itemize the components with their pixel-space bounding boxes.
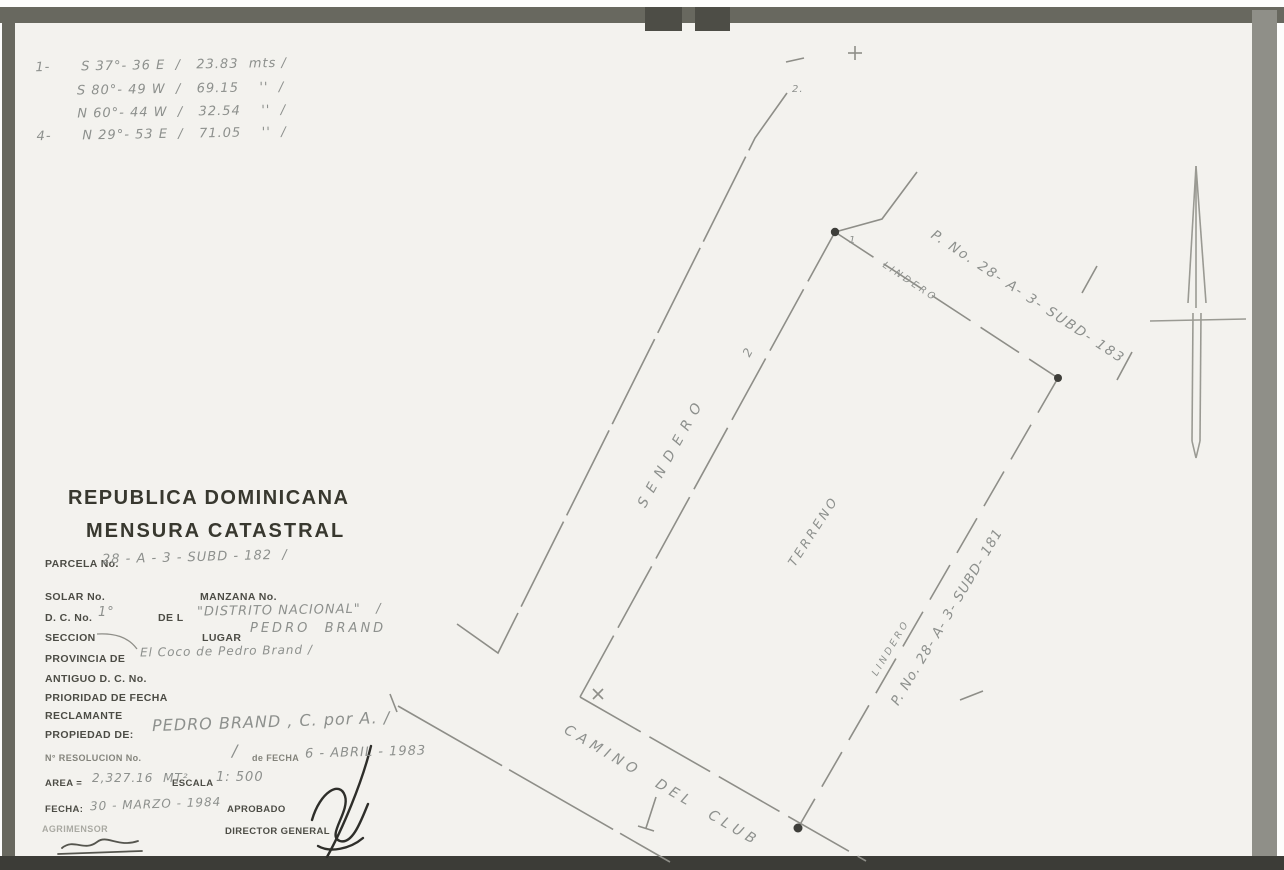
document-title-line1: REPUBLICA DOMINICANA xyxy=(68,487,349,510)
top-extension-mark: 2. xyxy=(792,84,804,95)
antiguo-dc-label: ANTIGUO D. C. No. xyxy=(45,673,147,685)
agrimensor-signature xyxy=(58,839,142,854)
seccion-label: SECCION xyxy=(45,632,96,644)
propiedad-label: PROPIEDAD DE: xyxy=(45,729,134,741)
north-arrow-icon xyxy=(1150,166,1246,458)
corner-dot-east xyxy=(1054,374,1062,382)
resolucion-label: N° RESOLUCION No. xyxy=(45,753,141,763)
document-title-line2: MENSURA CATASTRAL xyxy=(86,520,345,543)
corner-dot-north xyxy=(831,228,839,236)
parcel-edge-southeast xyxy=(798,378,1058,828)
aprobado-label: APROBADO xyxy=(227,804,286,815)
reclamante-label: RECLAMANTE xyxy=(45,710,123,722)
provincia-label: PROVINCIA DE xyxy=(45,653,125,665)
scanned-document: 1- S 37°- 36 E / 23.83 mts / S 80°- 49 W… xyxy=(0,0,1284,870)
agrimensor-label: AGRIMENSOR xyxy=(42,824,108,834)
sendero-west-line xyxy=(457,93,787,653)
road-station-tick xyxy=(646,797,656,828)
escala-label: ESCALA xyxy=(172,778,213,789)
area-label: AREA = xyxy=(45,778,82,789)
parcel-edge-northeast xyxy=(835,232,1058,378)
dc-value: 1° xyxy=(98,605,115,620)
lugar-label: LUGAR xyxy=(202,632,241,644)
north-corner-extension xyxy=(835,172,917,232)
dc-label: D. C. No. xyxy=(45,612,92,624)
escala-value: 1: 500 xyxy=(216,770,264,785)
camino-southwest-line xyxy=(398,706,670,862)
seccion-dash-arrow xyxy=(97,634,137,649)
dash-mark-right xyxy=(960,691,983,700)
fecha-resolucion-label: de FECHA xyxy=(252,753,299,763)
lugar-value: PEDRO BRAND xyxy=(250,621,386,636)
north-corner-mark: 1 xyxy=(849,235,856,246)
corner-dot-south xyxy=(794,824,803,833)
bearing-row: 1- S 37°- 36 E / 23.83 mts / xyxy=(35,56,287,75)
director-general-label: DIRECTOR GENERAL xyxy=(225,826,330,837)
bearing-table: 1- S 37°- 36 E / 23.83 mts / S 80°- 49 W… xyxy=(35,56,288,144)
prioridad-label: PRIORIDAD DE FECHA xyxy=(45,692,168,704)
fecha-label: FECHA: xyxy=(45,804,83,815)
bearing-row: S 80°- 49 W / 69.15 '' / xyxy=(36,80,288,99)
tilde-dash-mark xyxy=(786,58,804,62)
corner-dots xyxy=(794,228,1063,833)
parcel-edge-west xyxy=(580,232,835,697)
resolucion-value: / xyxy=(232,741,238,760)
director-signature xyxy=(312,746,371,857)
slash-mark-1 xyxy=(1082,266,1097,293)
camino-start-tick xyxy=(390,694,397,712)
fecha-resolucion-value: 6 - ABRIL - 1983 xyxy=(305,743,427,761)
parcel-edge-south-road xyxy=(580,697,866,861)
dc-de-label: DE L xyxy=(158,612,184,624)
solar-label: SOLAR No. xyxy=(45,591,105,603)
bearing-row: N 60°- 44 W / 32.54 '' / xyxy=(36,103,288,122)
manzana-label: MANZANA No. xyxy=(200,591,277,603)
